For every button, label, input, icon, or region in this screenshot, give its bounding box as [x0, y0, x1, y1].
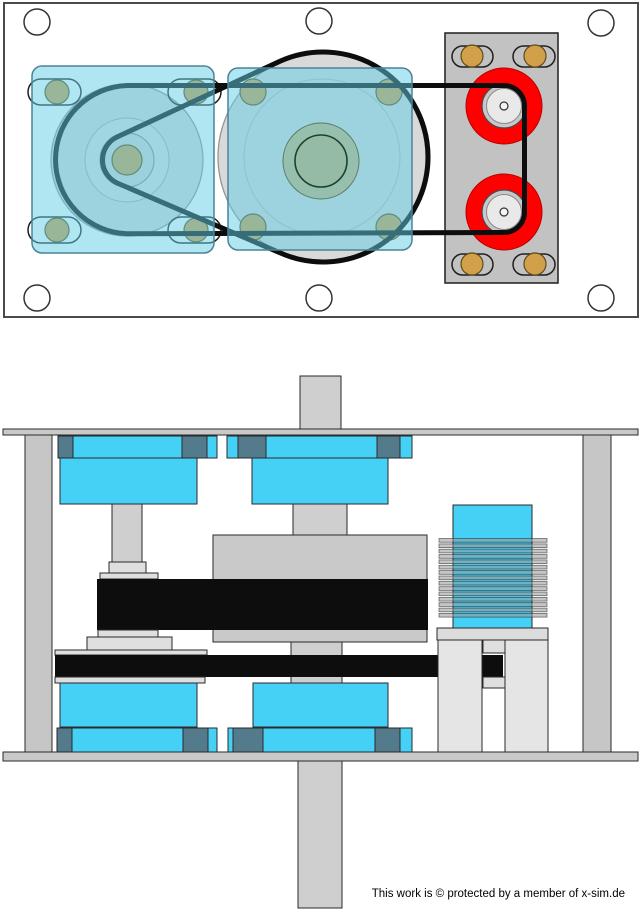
lamellae-stack [439, 539, 547, 618]
pulley-flange-lower [98, 630, 158, 637]
side-view: This work is © protected by a member of … [3, 376, 638, 908]
brass-bushing [524, 253, 546, 275]
brass-bushing [524, 45, 546, 67]
servo-body-top [60, 458, 197, 504]
left-glass-plate [32, 66, 214, 253]
top-view [4, 3, 638, 317]
tensioner-column [437, 505, 548, 640]
bearing-block [238, 436, 266, 458]
main-body-bottom [253, 683, 388, 727]
belt-tensioner-side [55, 655, 503, 677]
main-body-top [252, 458, 388, 504]
main-column [213, 436, 427, 683]
bottom-frame-plate [3, 752, 638, 761]
tensioner-guide-bottom [483, 677, 505, 688]
left-frame-post [25, 435, 52, 752]
tensioner-bracket [445, 33, 558, 283]
output-shaft-top [300, 376, 341, 429]
roller-axle [500, 208, 508, 216]
tensioner-base [437, 628, 548, 640]
shaft-step [109, 562, 146, 573]
bearing-block [58, 436, 73, 458]
pulley-flange [100, 573, 158, 579]
red-roller-top [466, 68, 542, 144]
belt-primary-side [97, 579, 428, 630]
copyright-text: This work is © protected by a member of … [372, 888, 625, 900]
bearing-block [183, 728, 208, 752]
servo-column [58, 436, 217, 579]
roller-axle [500, 102, 508, 110]
main-hub-inner [295, 135, 347, 187]
diagram-canvas: This work is © protected by a member of … [0, 0, 640, 910]
tensioner-leg [505, 640, 548, 752]
mounting-hole [306, 8, 332, 34]
red-roller-bottom [466, 174, 542, 250]
bearing-block [182, 436, 207, 458]
mounting-hole [306, 285, 332, 311]
brass-bushing [461, 253, 483, 275]
bearing-block [233, 728, 263, 752]
servo-hub-block [87, 637, 172, 650]
servo-body-bottom [60, 683, 197, 727]
bearing-block [375, 728, 400, 752]
mounting-hole [24, 285, 50, 311]
gearbox-diagram: This work is © protected by a member of … [0, 0, 640, 910]
brass-bushing [461, 45, 483, 67]
output-shaft-bottom [298, 761, 342, 908]
tensioner-guide-top [483, 640, 505, 653]
top-frame-plate [3, 429, 638, 435]
mounting-hole [588, 10, 614, 36]
disc-flange-bottom [55, 677, 205, 683]
mounting-hole [24, 9, 50, 35]
right-frame-post [583, 435, 611, 752]
bearing-block [57, 728, 72, 752]
tensioner-leg [438, 640, 482, 752]
bearing-block [377, 436, 400, 458]
main-shaft [293, 504, 347, 535]
servo-shaft [112, 504, 142, 562]
mounting-hole [588, 285, 614, 311]
disc-flange-top [55, 650, 207, 655]
